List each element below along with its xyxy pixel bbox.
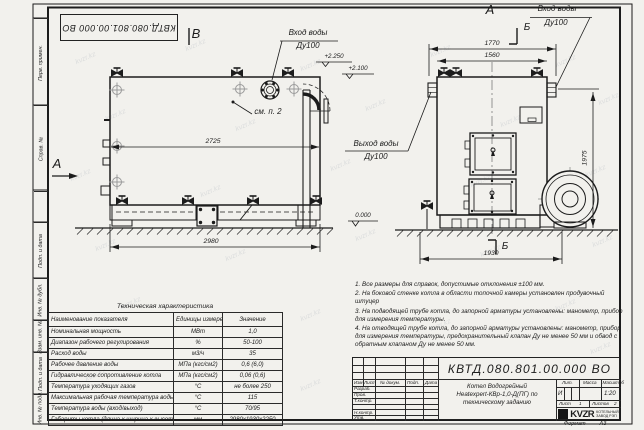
margin-cell-sprav-no: Справ. № — [34, 105, 48, 192]
sheets-value: 2 — [614, 402, 617, 407]
rev-col-izm: Изм — [354, 381, 363, 386]
front-outlet-dn: Ду100 — [364, 153, 387, 161]
tech-unit: м3/ч — [174, 349, 223, 360]
view-label-b: В — [192, 27, 201, 40]
dim-1975: 1975 — [583, 150, 590, 165]
note-3: 3. На подводящей трубе котла, до запорно… — [355, 308, 627, 324]
tech-name: Рабочее давление воды — [49, 360, 174, 371]
table-row: Рабочее давление водыМПа (кгс/см2)0,6 (6… — [49, 360, 283, 371]
view-label-a: А — [486, 3, 495, 16]
tech-value: 2980х1930х2250 — [223, 415, 283, 426]
tech-value: 70/95 — [223, 404, 283, 415]
front-inlet-label: Вход воды — [538, 5, 577, 13]
scale-value: 1:20 — [604, 391, 616, 397]
margin-cell-perv-primen: Перв. примен. — [34, 18, 48, 106]
table-row: Габариты котла (длина х ширина х высота)… — [49, 415, 283, 426]
tech-value: 0,06 (0,6) — [223, 371, 283, 382]
company-logo: KVZR КОТЕЛЬНЫЙ ЗАВОД РЭП — [556, 407, 621, 421]
format-label: Формат — [564, 421, 586, 427]
doc-number: КВТД.080.801.00.000 ВО — [438, 358, 621, 379]
tech-unit: °С — [174, 393, 223, 404]
corner-stamp-number: КВТД.080.801.00.000 ВО — [62, 23, 176, 33]
company-name: КОТЕЛЬНЫЙ ЗАВОД РЭП — [596, 410, 619, 418]
tech-name: Номинальная мощность — [49, 327, 174, 338]
tech-table: Техническая характеристика Наименование … — [48, 303, 282, 426]
dim-1930: 1930 — [483, 251, 498, 258]
table-row: Расход водым3/ч35 — [49, 349, 283, 360]
tech-value: 1,0 — [223, 327, 283, 338]
front-inlet-dn: Ду100 — [544, 19, 567, 27]
note-1: 1. Все размеры для справок, допустимые о… — [355, 281, 627, 289]
margin-cell-podp-data-1: Подп. и дата — [34, 222, 48, 279]
table-row: Температура уходящих газов°Сне более 250 — [49, 382, 283, 393]
tech-col-unit: Единицы измерения — [174, 313, 223, 327]
title-block: Изм Лист № докум. Подп. Дата Разраб. Про… — [352, 357, 620, 420]
tech-name: Диапазон рабочего регулирования — [49, 338, 174, 349]
notes-block: 1. Все размеры для справок, допустимые о… — [355, 281, 627, 351]
table-row: Номинальная мощностьМВт1,0 — [49, 327, 283, 338]
tech-name: Температура воды (вход/выход) — [49, 404, 174, 415]
sign-tkontr: Т.контр. — [354, 399, 373, 404]
rev-col-podp: Подп. — [407, 381, 419, 386]
table-row: Максимальная рабочая температура воды°С1… — [49, 393, 283, 404]
section-label-b-bottom: Б — [502, 242, 509, 252]
logo-text: KVZR — [570, 409, 594, 420]
tech-unit: °С — [174, 404, 223, 415]
table-row: Температура воды (вход/выход)°С70/95 — [49, 404, 283, 415]
lit-value: И — [558, 391, 562, 397]
tech-unit: МВт — [174, 327, 223, 338]
sign-utv: Утв. — [354, 416, 364, 421]
tech-name: Габариты котла (длина х ширина х высота) — [49, 415, 174, 426]
sign-razrab: Разраб. — [354, 387, 371, 392]
tech-unit: МПа (кгс/см2) — [174, 371, 223, 382]
corner-stamp: КВТД.080.801.00.000 ВО — [60, 14, 178, 41]
tech-col-name: Наименование показателя — [49, 313, 174, 327]
lit-label: Лит. — [562, 381, 573, 386]
section-label-b-top: Б — [524, 23, 531, 33]
margin-cell-inv-dubl: Инв. № дубл. — [34, 278, 48, 321]
tech-name: Расход воды — [49, 349, 174, 360]
tech-name: Гидравлическое сопротивление котла — [49, 371, 174, 382]
product-line-1: Котел Водогрейный — [438, 383, 556, 391]
tech-unit: МПа (кгс/см2) — [174, 360, 223, 371]
tech-unit: °С — [174, 382, 223, 393]
tech-value: 0,6 (6,0) — [223, 360, 283, 371]
product-line-3: техническому заданию — [438, 399, 556, 407]
tech-value: 50-100 — [223, 338, 283, 349]
elevation-top: +2.250 — [324, 54, 343, 60]
sheet-value: 1 — [579, 402, 582, 407]
table-row: Диапазон рабочего регулирования%50-100 — [49, 338, 283, 349]
format-note: Формат А3 — [545, 421, 625, 427]
tech-value: не более 250 — [223, 382, 283, 393]
elevation-mid: +2.100 — [348, 66, 367, 72]
dim-1770: 1770 — [484, 41, 499, 48]
side-inlet-label: Вход воды — [289, 29, 328, 37]
rev-col-list: Лист — [364, 381, 376, 386]
dim-2980: 2980 — [203, 239, 218, 246]
note-4: 4. На отводящей трубе котла, до запорной… — [355, 325, 627, 350]
tech-name: Максимальная рабочая температура воды — [49, 393, 174, 404]
tech-unit: мм — [174, 415, 223, 426]
product-line-2: Heatexpert-КВр-1,0-Д(ПГ) по — [438, 391, 556, 399]
dim-1560: 1560 — [484, 53, 499, 60]
margin-cell-vzam-inv: Взам. инв. № — [34, 320, 48, 353]
front-outlet-label: Выход воды — [354, 140, 399, 148]
tech-table-title: Техническая характеристика — [48, 303, 282, 310]
sheet-label: Лист — [559, 402, 571, 407]
table-row: Гидравлическое сопротивление котлаМПа (к… — [49, 371, 283, 382]
tech-unit: % — [174, 338, 223, 349]
product-name: Котел Водогрейный Heatexpert-КВр-1,0-Д(П… — [438, 380, 556, 407]
see-note-label: см. п. 2 — [254, 108, 281, 116]
sheets-label: Листов — [592, 402, 609, 407]
tech-name: Температура уходящих газов — [49, 382, 174, 393]
drawing-sheet: kvzr.kzkvzr.kzkvzr.kzkvzr.kzkvzr.kzkvzr.… — [0, 0, 644, 430]
side-inlet-dn: Ду100 — [296, 42, 319, 50]
tech-col-value: Значение — [223, 313, 283, 327]
scale-label: Масштаб — [603, 381, 624, 386]
margin-cell-podp-data-2: Подп. и дата — [34, 352, 48, 395]
rev-col-doc: № докум. — [380, 381, 400, 386]
tech-value: 35 — [223, 349, 283, 360]
rev-col-data: Дата — [425, 381, 437, 386]
note-2: 2. На боковой стенке котла в области топ… — [355, 290, 627, 306]
section-label-a-left: А — [53, 157, 62, 170]
margin-cell-inv-podl: Инв. № подл. — [34, 394, 48, 421]
dim-2725: 2725 — [205, 139, 220, 146]
format-value: А3 — [600, 421, 607, 427]
elevation-zero: 0.000 — [355, 213, 370, 219]
mass-label: Масса — [583, 381, 597, 386]
logo-mark-icon — [558, 409, 568, 419]
tech-value: 115 — [223, 393, 283, 404]
